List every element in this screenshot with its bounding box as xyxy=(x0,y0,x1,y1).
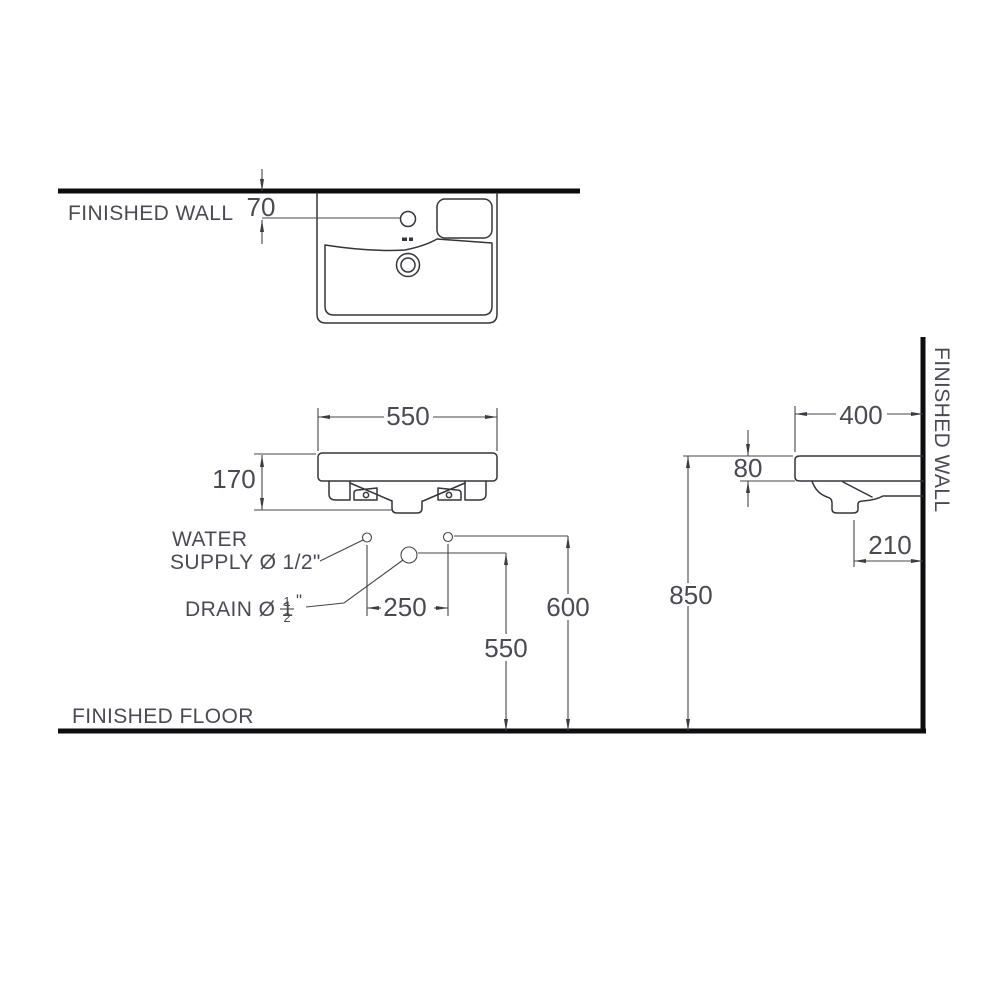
supply-drain-points xyxy=(363,533,453,564)
front-bowl-left-slope xyxy=(350,483,392,501)
side-bowl-underside xyxy=(812,481,923,513)
dimension-basin-width: 550 xyxy=(318,401,497,451)
dim-210-value: 210 xyxy=(868,530,911,560)
dimension-supply-spacing: 250 xyxy=(367,544,448,622)
drain-fraction-numerator: 1 xyxy=(283,594,290,609)
dim-170-value: 170 xyxy=(212,464,255,494)
front-left-screw-hole xyxy=(363,492,368,497)
plan-drain-inner-circle xyxy=(401,258,415,272)
water-supply-label-line1: WATER xyxy=(172,528,248,551)
dim-600-value: 600 xyxy=(546,592,589,622)
dim-850-value: 850 xyxy=(669,580,712,610)
front-left-lug xyxy=(329,481,350,500)
water-supply-label-line2: SUPPLY Ø 1/2" xyxy=(170,551,321,574)
dimension-rim-thickness: 80 xyxy=(734,430,763,507)
water-supply-label-group: WATER SUPPLY Ø 1/2" xyxy=(170,528,363,574)
front-drain-boss xyxy=(392,501,422,513)
side-rim-outline xyxy=(795,456,923,481)
drain-label: DRAIN Ø 1 xyxy=(185,598,294,621)
dim-550w-value: 550 xyxy=(386,401,429,431)
plan-faucet-hole xyxy=(401,212,416,227)
technical-drawing-canvas: FINISHED WALL FINISHED FLOOR FINISHED WA… xyxy=(0,0,1000,1000)
water-supply-leader-line xyxy=(320,540,363,561)
front-right-screw-hole xyxy=(446,492,451,497)
dimension-rim-height: 850 xyxy=(669,456,793,731)
finished-wall-top-label: FINISHED WALL xyxy=(68,202,233,225)
front-bowl-right-slope xyxy=(423,483,465,501)
dimension-basin-depth: 400 xyxy=(795,400,923,452)
finished-wall-side-label: FINISHED WALL xyxy=(930,347,953,512)
plan-drain-outer-circle xyxy=(397,254,420,277)
drawing-page: FINISHED WALL FINISHED FLOOR FINISHED WA… xyxy=(0,0,1000,1000)
drain-inch-mark: " xyxy=(296,591,302,610)
front-view xyxy=(318,453,497,513)
plan-view xyxy=(317,193,497,323)
dimension-trap-offset: 210 xyxy=(854,520,923,567)
drain-point xyxy=(401,547,417,563)
dimension-wall-to-faucet: 70 xyxy=(247,169,400,244)
water-supply-point-left xyxy=(363,533,372,542)
dim-250-value: 250 xyxy=(383,592,426,622)
dim-400-value: 400 xyxy=(839,400,882,430)
dim-80-value: 80 xyxy=(734,453,763,483)
plan-overflow-tick xyxy=(402,238,407,242)
dimension-front-height: 170 xyxy=(212,454,392,510)
side-bowl-inner-edge xyxy=(843,482,872,497)
drain-fraction-denominator: 2 xyxy=(283,610,290,625)
front-rim-outline xyxy=(318,453,497,481)
water-supply-point-right xyxy=(444,533,453,542)
dimension-drain-height: 550 xyxy=(418,553,528,731)
plan-soap-deck-outline xyxy=(437,199,492,238)
finished-floor-label: FINISHED FLOOR xyxy=(72,705,254,728)
dim-70-value: 70 xyxy=(247,192,276,222)
front-right-lug xyxy=(465,481,486,500)
side-view xyxy=(740,456,923,513)
dim-550h-value: 550 xyxy=(484,633,527,663)
plan-overflow-tick xyxy=(409,238,413,242)
